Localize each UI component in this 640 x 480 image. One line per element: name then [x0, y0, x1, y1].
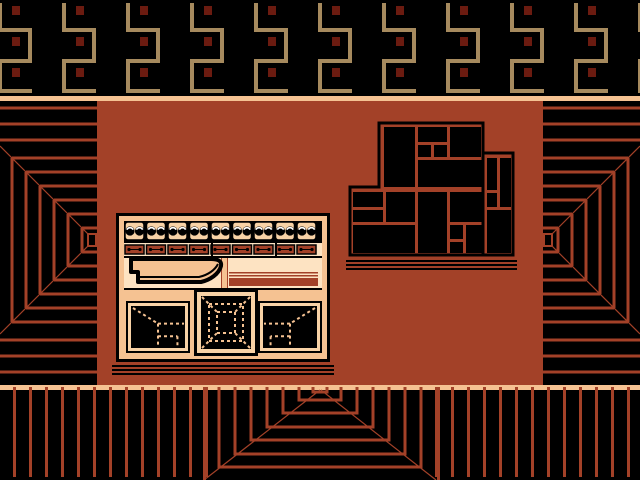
- console-slider[interactable]: [190, 245, 209, 254]
- map-room: [418, 192, 447, 253]
- frieze-square: [524, 68, 532, 77]
- knob-module[interactable]: [125, 222, 144, 240]
- knob-module[interactable]: [254, 222, 273, 240]
- map-room: [418, 160, 482, 187]
- frieze-square: [268, 68, 276, 77]
- slider-group-divider: [211, 243, 213, 258]
- map-shadow-line: [346, 260, 517, 262]
- frieze-square: [332, 6, 340, 15]
- frieze-square: [588, 6, 596, 15]
- hull-lever[interactable]: [131, 259, 221, 282]
- frieze-square: [460, 6, 468, 15]
- frieze-square: [268, 6, 276, 15]
- console-slider[interactable]: [125, 245, 144, 254]
- map-room: [487, 158, 497, 190]
- knob-module[interactable]: [211, 222, 230, 240]
- map-room: [450, 127, 481, 157]
- map-room: [384, 127, 415, 187]
- console-base-line: [112, 373, 334, 375]
- frieze-square: [332, 37, 340, 46]
- console-slider[interactable]: [276, 245, 295, 254]
- console-slider[interactable]: [254, 245, 273, 254]
- map-room: [450, 242, 463, 253]
- frieze-square: [268, 37, 276, 46]
- map-room: [450, 192, 482, 222]
- frieze-square: [396, 6, 404, 15]
- frieze-square: [396, 37, 404, 46]
- frieze-square: [76, 6, 84, 15]
- frieze-square: [140, 6, 148, 15]
- map-room: [450, 225, 463, 239]
- frieze-square: [204, 68, 212, 77]
- frieze-square: [588, 37, 596, 46]
- console-base-line: [112, 369, 334, 371]
- console-slider[interactable]: [233, 245, 252, 254]
- frieze-square: [204, 37, 212, 46]
- knob-module[interactable]: [233, 222, 252, 240]
- game-scene: [0, 0, 640, 480]
- map-room: [466, 225, 482, 253]
- screen-corner-right[interactable]: [258, 301, 322, 353]
- stripe-band: [229, 278, 318, 286]
- frieze-square: [204, 6, 212, 15]
- screen-tunnel[interactable]: [194, 289, 258, 356]
- screen-corner-left[interactable]: [126, 301, 190, 353]
- knob-module[interactable]: [276, 222, 295, 240]
- scene-art: [0, 0, 640, 480]
- map-room: [418, 145, 431, 157]
- screen-glass: [201, 296, 251, 349]
- console-slider[interactable]: [147, 245, 166, 254]
- vanishing-point-door: [88, 234, 96, 246]
- console-base-line: [112, 365, 334, 367]
- knob-module[interactable]: [147, 222, 166, 240]
- frieze-square: [140, 68, 148, 77]
- console-slider[interactable]: [211, 245, 230, 254]
- frieze-square: [460, 37, 468, 46]
- map-room: [353, 210, 383, 222]
- vanishing-point-door: [544, 234, 552, 246]
- control-console[interactable]: [112, 213, 334, 375]
- map-room: [434, 145, 447, 157]
- console-slider[interactable]: [168, 245, 187, 254]
- map-room: [418, 127, 447, 142]
- map-room: [353, 192, 383, 207]
- map-room: [386, 192, 415, 222]
- console-slider[interactable]: [297, 245, 316, 254]
- map-room: [353, 225, 415, 253]
- map-shadow-line: [346, 268, 517, 270]
- frieze-square: [524, 37, 532, 46]
- frieze-square: [12, 68, 20, 77]
- map-room: [500, 158, 511, 207]
- map-room: [487, 210, 511, 253]
- frieze-square: [332, 68, 340, 77]
- frieze-square: [140, 37, 148, 46]
- cornice-line: [0, 96, 640, 101]
- frieze-square: [460, 68, 468, 77]
- frieze-square: [396, 68, 404, 77]
- frieze-square: [76, 68, 84, 77]
- frieze-square: [588, 68, 596, 77]
- map-room: [487, 193, 497, 207]
- map-shadow-line: [346, 264, 517, 266]
- knob-module[interactable]: [297, 222, 316, 240]
- slider-group-divider: [275, 243, 277, 258]
- frieze-square: [12, 6, 20, 15]
- knob-module[interactable]: [168, 222, 187, 240]
- knob-module[interactable]: [190, 222, 209, 240]
- frieze-square: [76, 37, 84, 46]
- frieze-square: [524, 6, 532, 15]
- frieze-square: [12, 37, 20, 46]
